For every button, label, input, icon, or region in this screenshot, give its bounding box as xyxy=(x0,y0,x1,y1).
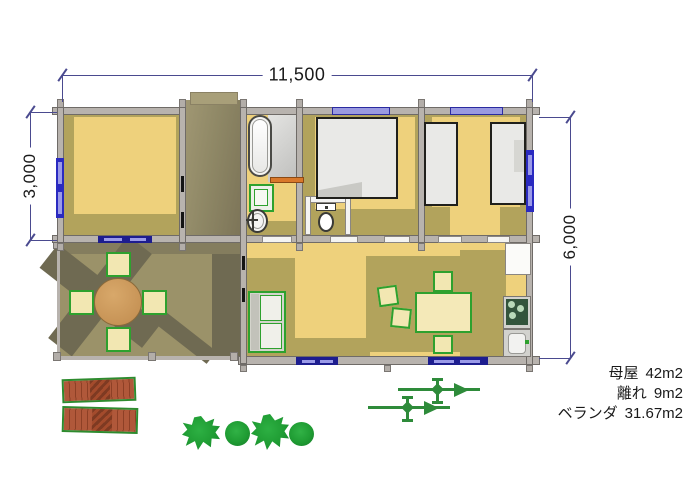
stove-burner xyxy=(517,305,524,312)
dimension-extension xyxy=(31,112,57,113)
veranda-shadow-corridor xyxy=(212,254,240,356)
dining-chair xyxy=(433,335,453,354)
living-shadow-bottom xyxy=(295,338,370,356)
door-detached xyxy=(181,212,184,228)
toilet-button xyxy=(325,206,328,209)
veranda-chair xyxy=(106,327,131,352)
dimension-extension xyxy=(539,358,570,359)
lounge-chair-1 xyxy=(62,377,137,404)
double-bed xyxy=(316,117,398,199)
legend-label: ベランダ xyxy=(558,404,618,424)
lounge-chair-2 xyxy=(62,406,139,434)
kitchen-counter xyxy=(505,243,531,275)
plant-tick xyxy=(432,378,443,381)
single-bed-2 xyxy=(490,122,526,205)
dining-chair xyxy=(377,285,400,308)
door-living xyxy=(242,256,245,270)
legend-value: 9m2 xyxy=(654,384,683,404)
plant-tick xyxy=(402,419,413,422)
window-glass xyxy=(58,162,62,184)
veranda-chair xyxy=(106,252,131,277)
veranda-post xyxy=(230,352,238,361)
plant-tick xyxy=(402,396,413,399)
wall-bath-bedroom xyxy=(296,107,303,243)
door-opening xyxy=(438,236,462,243)
log-end xyxy=(526,365,533,372)
entrance-step xyxy=(190,92,238,105)
toilet-tank xyxy=(316,203,336,211)
dimension-left-label: 3,000 xyxy=(20,147,40,204)
window-glass xyxy=(58,192,62,214)
wall-top-left xyxy=(52,107,186,115)
window-glass xyxy=(104,238,122,241)
dining-chair xyxy=(390,307,412,329)
log-end xyxy=(179,243,186,251)
towel-shelf xyxy=(270,177,304,183)
washing-machine xyxy=(249,184,274,212)
sofa-armrest xyxy=(251,294,259,350)
veranda-post xyxy=(53,352,61,361)
legend-value: 42m2 xyxy=(645,364,683,384)
corridor-floor xyxy=(186,100,240,242)
legend-label: 離れ xyxy=(617,384,647,404)
toilet-alcove-right xyxy=(345,196,351,235)
sofa-cushion xyxy=(260,323,282,349)
plant-symbol-icon xyxy=(368,396,450,426)
bathroom-tile xyxy=(268,114,296,182)
bush-icon xyxy=(182,416,220,450)
kitchen-stove xyxy=(503,296,531,329)
bush-icon xyxy=(251,414,289,450)
plant-arrow xyxy=(424,401,439,415)
stove-burner xyxy=(508,301,515,308)
plant-node xyxy=(431,383,444,396)
legend-label: 母屋 xyxy=(608,364,638,384)
window-glass xyxy=(320,360,333,363)
door-opening xyxy=(487,236,510,243)
door-opening xyxy=(384,236,410,243)
wash-basin xyxy=(247,209,268,233)
dimension-extension xyxy=(539,117,570,118)
dimension-extension xyxy=(532,76,533,102)
log-end xyxy=(57,243,64,251)
floor-plan: 11,500 3,000 6,000 母屋42m2 離れ9m2 ベランダ31.6… xyxy=(0,0,700,496)
door-living xyxy=(242,288,245,302)
log-end xyxy=(296,243,303,251)
toilet-alcove-left xyxy=(305,196,311,235)
kitchen-sink xyxy=(503,329,531,357)
sofa-cushion xyxy=(260,295,282,321)
dining-chair xyxy=(433,271,453,292)
room-detached-floor-light xyxy=(74,117,176,214)
bathtub-inner xyxy=(252,119,268,173)
legend-row-veranda: ベランダ31.67m2 xyxy=(558,404,683,424)
washing-machine-lid xyxy=(254,189,268,206)
door-opening xyxy=(330,236,358,243)
window-top-bedroom1 xyxy=(332,107,390,115)
veranda-edge-left xyxy=(57,242,60,360)
stove-burner xyxy=(509,312,516,319)
veranda-chair xyxy=(142,290,167,315)
log-end xyxy=(240,365,247,372)
wall-main-left xyxy=(240,107,247,364)
legend-row-detached: 離れ9m2 xyxy=(558,384,683,404)
plant-node xyxy=(401,401,414,414)
area-legend: 母屋42m2 離れ9m2 ベランダ31.67m2 xyxy=(558,364,683,424)
dining-table xyxy=(415,292,472,333)
bed-fold xyxy=(318,182,362,197)
window-glass xyxy=(130,238,146,241)
bedroom2-floor-light2 xyxy=(450,207,500,235)
log-end xyxy=(418,243,425,251)
dimension-extension xyxy=(62,76,63,102)
window-glass xyxy=(460,360,480,363)
window-glass xyxy=(434,360,454,363)
door-detached xyxy=(181,176,184,192)
veranda-post xyxy=(148,352,156,361)
bush-icon xyxy=(289,422,314,446)
basin-faucet xyxy=(246,219,258,221)
basin-faucet xyxy=(252,212,254,230)
window-glass xyxy=(528,155,532,175)
lounge-cushion xyxy=(90,380,111,401)
plant-arrow xyxy=(454,383,469,397)
toilet-bowl xyxy=(318,212,334,232)
bed-fold xyxy=(514,140,524,172)
wall-bottom xyxy=(238,356,540,365)
log-end xyxy=(384,365,391,372)
bush-icon xyxy=(225,421,250,446)
dimension-width-label: 11,500 xyxy=(263,65,332,86)
sofa xyxy=(248,291,286,353)
veranda-chair xyxy=(69,290,94,315)
single-bed-1 xyxy=(424,122,458,206)
window-top-bedroom2 xyxy=(450,107,503,115)
sink-faucet xyxy=(525,340,529,344)
legend-row-main-house: 母屋42m2 xyxy=(558,364,683,384)
dimension-right-label: 6,000 xyxy=(560,208,580,265)
door-opening xyxy=(262,236,292,243)
window-glass xyxy=(528,186,532,206)
legend-value: 31.67m2 xyxy=(625,404,683,424)
dimension-extension xyxy=(31,240,57,241)
sink-basin xyxy=(508,333,526,354)
veranda-table xyxy=(94,278,142,326)
bathtub xyxy=(248,115,272,177)
lounge-cushion xyxy=(92,409,113,432)
window-glass xyxy=(302,360,315,363)
